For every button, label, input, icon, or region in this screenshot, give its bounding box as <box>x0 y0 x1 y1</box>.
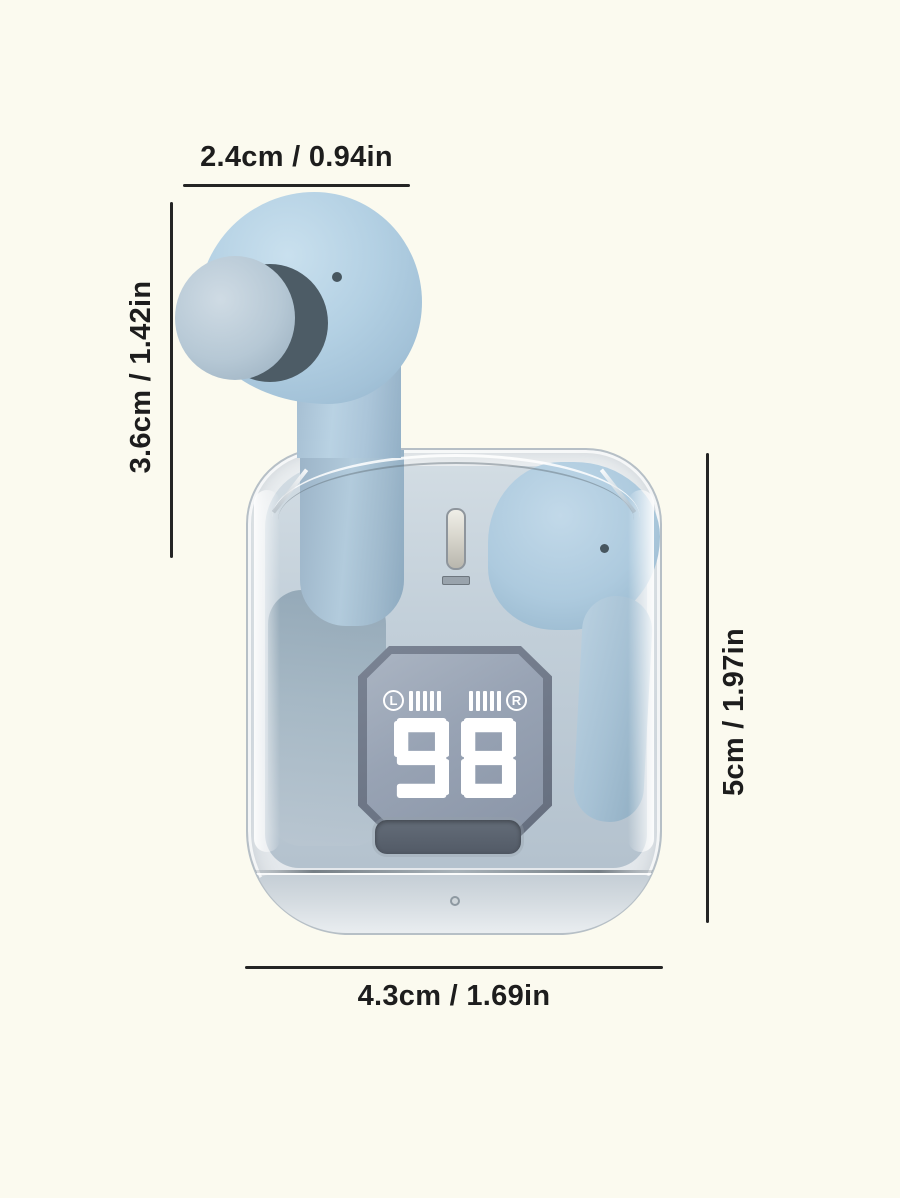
earbud-silicone-tip <box>175 256 295 380</box>
earbud-width-label: 2.4cm / 0.94in <box>183 140 410 174</box>
earbud-height-dimension-line <box>170 202 173 558</box>
product-dimension-diagram: 2.4cm / 0.94in 3.6cm / 1.42in 5cm / 1.97… <box>0 0 900 1198</box>
case-shell: L R <box>248 450 660 933</box>
left-battery-bars-icon <box>409 691 441 711</box>
battery-percentage-readout <box>367 718 543 798</box>
shell-gloss-left <box>254 490 280 852</box>
right-channel-icon: R <box>506 690 527 711</box>
case-hinge-connector <box>442 576 470 585</box>
earbud-height-label: 3.6cm / 1.42in <box>124 267 158 487</box>
case-charging-contact-slot <box>375 820 521 854</box>
right-earbud-mic-hole <box>600 544 609 553</box>
earbud-width-dimension-line <box>183 184 410 187</box>
case-width-label: 4.3cm / 1.69in <box>245 979 663 1013</box>
battery-display: L R <box>367 654 543 828</box>
channel-indicator-row: L R <box>367 690 543 711</box>
case-width-dimension-line <box>245 966 663 969</box>
case-height-dimension-line <box>706 453 709 923</box>
left-channel-icon: L <box>383 690 404 711</box>
shell-gloss-right <box>628 490 654 852</box>
earbud-mic-hole <box>332 272 342 282</box>
case-height-label: 5cm / 1.97in <box>717 602 751 822</box>
charging-case: L R <box>246 448 662 935</box>
right-battery-bars-icon <box>469 691 501 711</box>
case-led-indicator <box>450 896 460 906</box>
